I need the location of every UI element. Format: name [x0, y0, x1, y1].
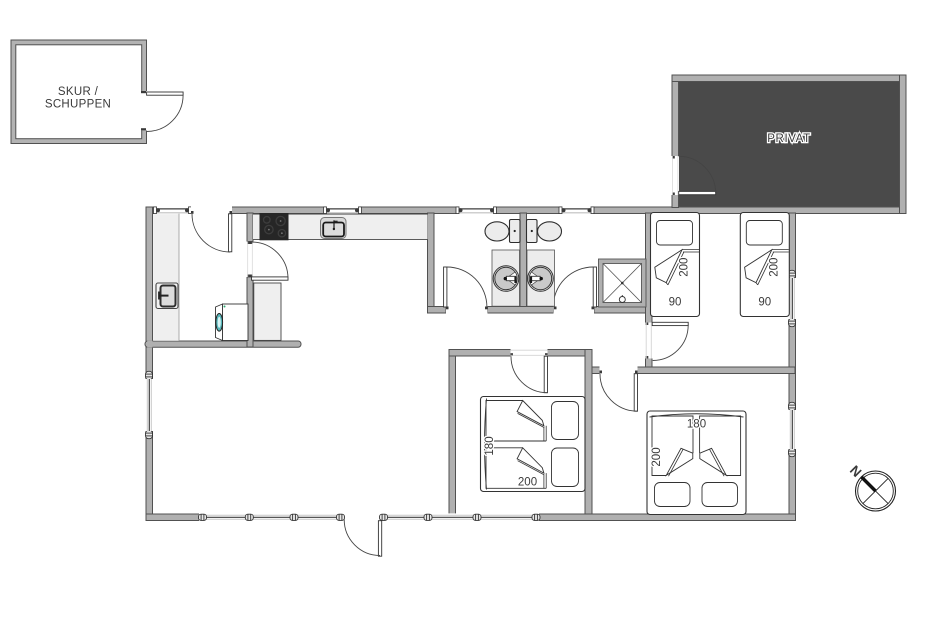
svg-text:PRIVAT: PRIVAT: [767, 133, 810, 145]
svg-text:180: 180: [687, 419, 706, 431]
svg-text:90: 90: [758, 297, 771, 309]
svg-text:200: 200: [518, 477, 537, 489]
svg-text:200: 200: [651, 447, 663, 466]
svg-text:200: 200: [679, 258, 691, 277]
svg-text:90: 90: [669, 297, 682, 309]
svg-text:SCHUPPEN: SCHUPPEN: [45, 99, 111, 111]
svg-text:200: 200: [768, 258, 780, 277]
svg-text:180: 180: [484, 436, 496, 455]
svg-text:SKUR /: SKUR /: [58, 86, 99, 98]
